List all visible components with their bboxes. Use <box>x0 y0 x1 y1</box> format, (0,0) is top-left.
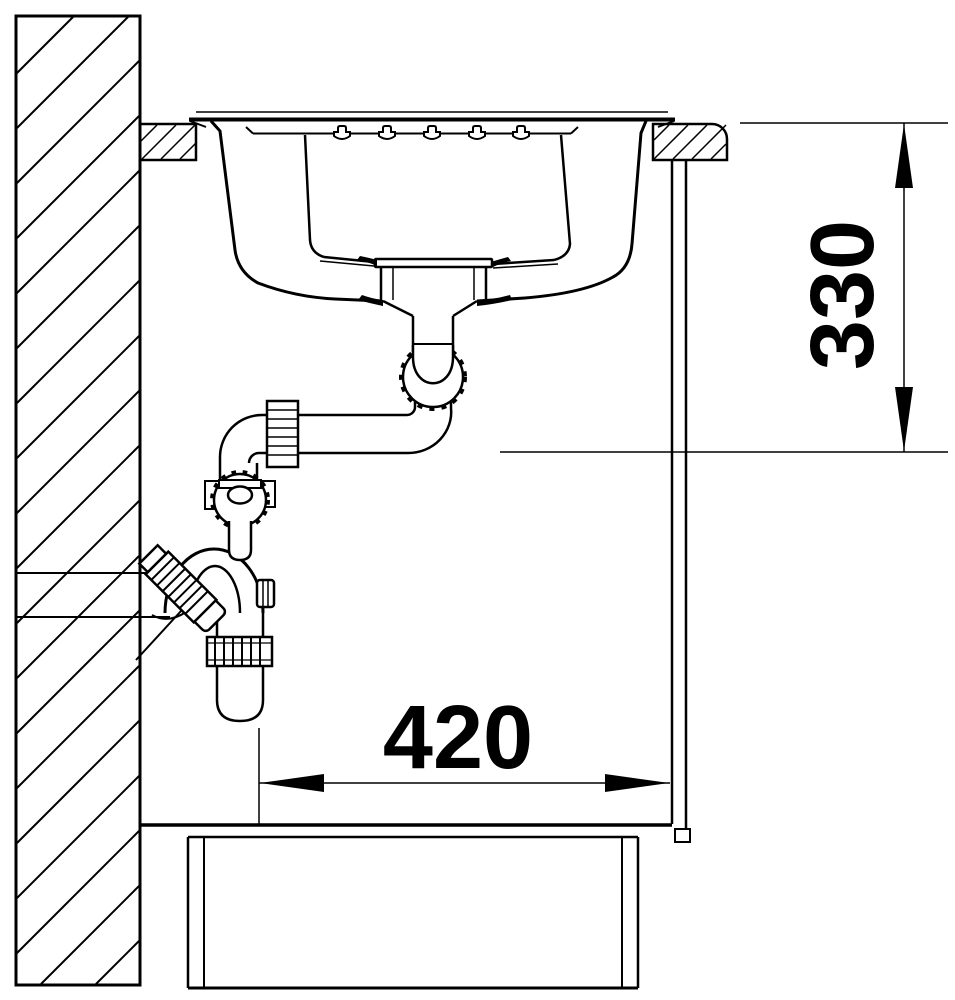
mounting-clip <box>469 126 485 139</box>
dimension-420-label: 420 <box>383 688 533 788</box>
pipe-coupling <box>267 401 298 467</box>
trap-union-nut <box>207 637 272 666</box>
vent-collar <box>257 580 274 607</box>
sink-bowl <box>189 112 675 301</box>
countertop-left <box>141 124 196 160</box>
tube-u-end <box>413 345 453 383</box>
arrowhead-left <box>260 774 324 792</box>
bowl-inner-wall-right <box>554 135 570 260</box>
technical-drawing-canvas: 330 420 <box>0 0 955 1000</box>
mounting-clip <box>424 126 440 139</box>
shell-seal-left <box>358 295 383 306</box>
bowl-inner-wall-left <box>305 135 324 257</box>
cleanout-knob <box>205 473 275 528</box>
countertop-left-outline <box>141 124 196 160</box>
countertop-left-hatching <box>141 125 196 159</box>
base-cabinet <box>141 160 690 988</box>
wall-outline <box>16 16 140 985</box>
wall-hatching <box>17 17 139 984</box>
hose-under-arc <box>152 612 186 619</box>
trap-siphon <box>137 521 274 721</box>
arrowhead-up <box>895 124 913 188</box>
mounting-clip <box>334 126 350 139</box>
tailpiece-shoulders <box>383 301 477 316</box>
sink-section-diagram: 330 420 <box>0 0 955 1000</box>
dimension-420: 420 <box>259 688 670 826</box>
inlet-dip-tube <box>229 521 251 560</box>
coupling-body <box>267 401 298 467</box>
countertop-right-hatching <box>654 125 726 159</box>
knob-hole <box>228 487 252 504</box>
dimension-330-label: 330 <box>793 220 893 370</box>
strainer-flange <box>375 259 492 267</box>
shell-seal-right <box>477 295 512 306</box>
drain-assembly <box>220 256 512 481</box>
outlet-coupling <box>137 543 228 634</box>
countertop-right <box>653 124 727 160</box>
arrowhead-right <box>605 774 669 792</box>
left-elbow <box>220 415 262 481</box>
mounting-clip <box>379 126 395 139</box>
dimension-330: 330 <box>500 123 948 452</box>
arrowhead-down <box>895 387 913 451</box>
cabinet-side-foot <box>675 829 690 842</box>
drain-elbow <box>407 402 451 453</box>
cabinet-plinth <box>188 837 638 988</box>
strainer-body-walls <box>381 267 486 300</box>
trap-nut-body <box>207 637 272 666</box>
bowl-outer-shell <box>211 121 646 301</box>
wall-section <box>16 16 140 985</box>
strainer-body-inner <box>393 267 474 300</box>
mounting-clip <box>513 126 529 139</box>
